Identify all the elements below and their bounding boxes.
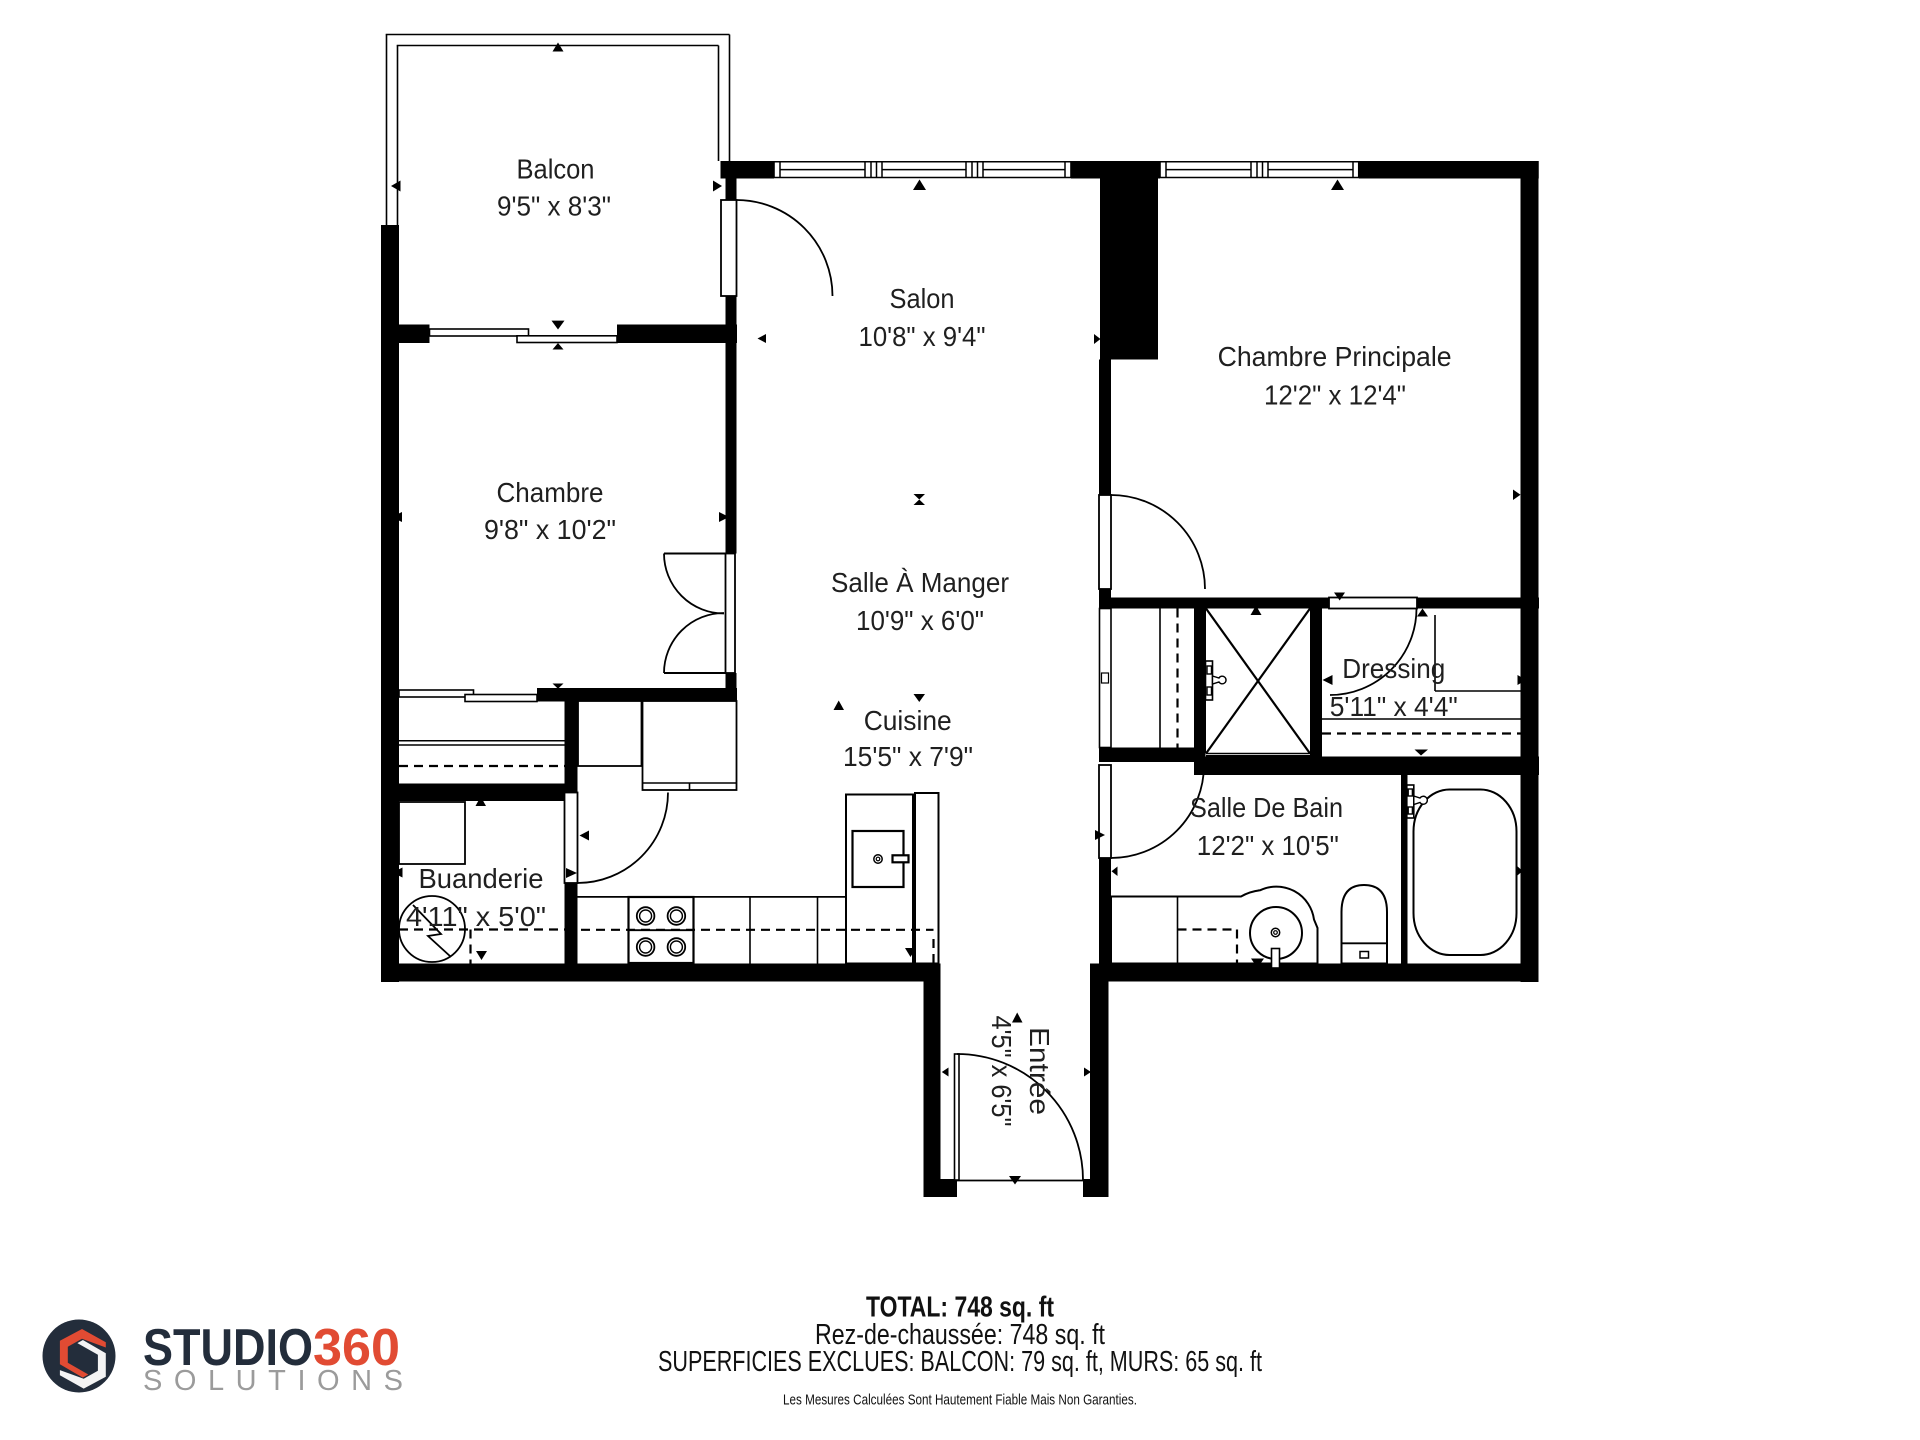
svg-text:Les Mesures Calculées Sont Hau: Les Mesures Calculées Sont Hautement Fia… [783,1392,1137,1409]
svg-text:Salle De Bain: Salle De Bain [1190,792,1343,823]
svg-text:5'11" x 4'4": 5'11" x 4'4" [1330,691,1458,722]
svg-text:10'8" x 9'4": 10'8" x 9'4" [859,321,986,352]
svg-text:Buanderie: Buanderie [419,863,544,894]
svg-text:4'11" x 5'0": 4'11" x 5'0" [406,901,546,932]
svg-text:SOLUTIONS: SOLUTIONS [143,1365,403,1397]
svg-text:12'2" x 10'5": 12'2" x 10'5" [1197,830,1339,861]
svg-text:9'8" x 10'2": 9'8" x 10'2" [484,514,616,545]
svg-text:SUPERFICIES EXCLUES: BALCON: 7: SUPERFICIES EXCLUES: BALCON: 79 sq. ft, … [658,1346,1262,1378]
svg-text:STUDIO: STUDIO [143,1319,313,1377]
svg-text:Salle À Manger: Salle À Manger [831,567,1009,598]
svg-text:4'5" x 6'5": 4'5" x 6'5" [986,1016,1017,1127]
svg-text:12'2" x 12'4": 12'2" x 12'4" [1264,380,1406,411]
svg-text:15'5" x 7'9": 15'5" x 7'9" [843,741,973,772]
svg-text:9'5" x 8'3": 9'5" x 8'3" [497,191,611,222]
svg-text:10'9" x 6'0": 10'9" x 6'0" [856,605,984,636]
svg-text:Balcon: Balcon [517,154,595,185]
svg-text:Dressing: Dressing [1342,653,1445,684]
svg-text:Chambre Principale: Chambre Principale [1218,341,1452,372]
svg-text:Cuisine: Cuisine [864,705,952,736]
svg-text:Entrée: Entrée [1024,1027,1055,1115]
svg-text:Salon: Salon [890,283,955,314]
svg-text:Chambre: Chambre [497,477,604,508]
